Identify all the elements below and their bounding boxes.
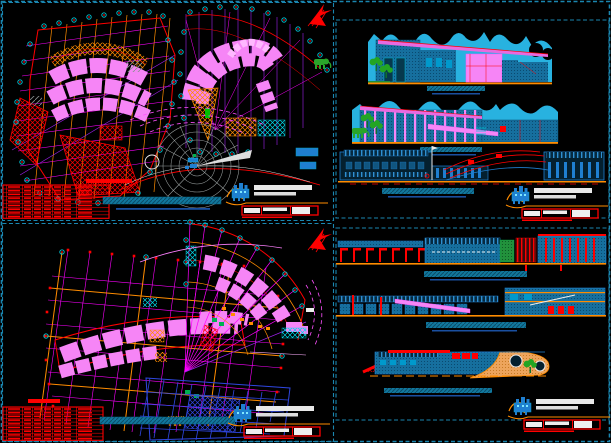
- sheet-color-elevations: [338, 25, 608, 221]
- sheet-upper-floor-plans: [3, 220, 332, 440]
- east-wing-floor-plan: [178, 5, 329, 156]
- north-arrow-icon: [308, 4, 332, 28]
- drawing-title-bar: [100, 417, 235, 424]
- rear-color-elevation: [352, 96, 558, 156]
- north-arrow-icon: [308, 228, 332, 252]
- title-block-stamp: [228, 404, 330, 439]
- west-wing-floor-plan: [10, 10, 178, 205]
- room-block-band: [50, 65, 148, 116]
- drawing-title-bar: [384, 388, 492, 397]
- drawing-title-bar: [424, 271, 527, 281]
- flagpole: [432, 146, 433, 180]
- red-column-row: [340, 248, 426, 262]
- cad-sheet-canvas: [0, 0, 611, 443]
- sheet-lower-floor-plans: [3, 4, 332, 218]
- drawing-title-bar: [103, 197, 221, 210]
- road-arcs: [306, 280, 322, 345]
- drawing-title-bar: [427, 86, 485, 95]
- partial-section-c: [363, 350, 550, 397]
- longitudinal-section-a: [336, 234, 606, 281]
- title-block-stamp: [506, 186, 608, 221]
- drawing-title-bar: [426, 322, 526, 332]
- east-wing-fan-plan: [140, 220, 322, 372]
- sheet-sections: [336, 234, 610, 432]
- elephant-icon: [314, 59, 331, 70]
- site-furniture-symbols: [296, 148, 318, 189]
- front-color-elevation: [368, 25, 554, 95]
- title-block-stamp: [226, 183, 328, 218]
- title-block-stamp: [508, 397, 610, 432]
- drawing-title-bar: [382, 188, 474, 198]
- longitudinal-section-b: [336, 288, 606, 332]
